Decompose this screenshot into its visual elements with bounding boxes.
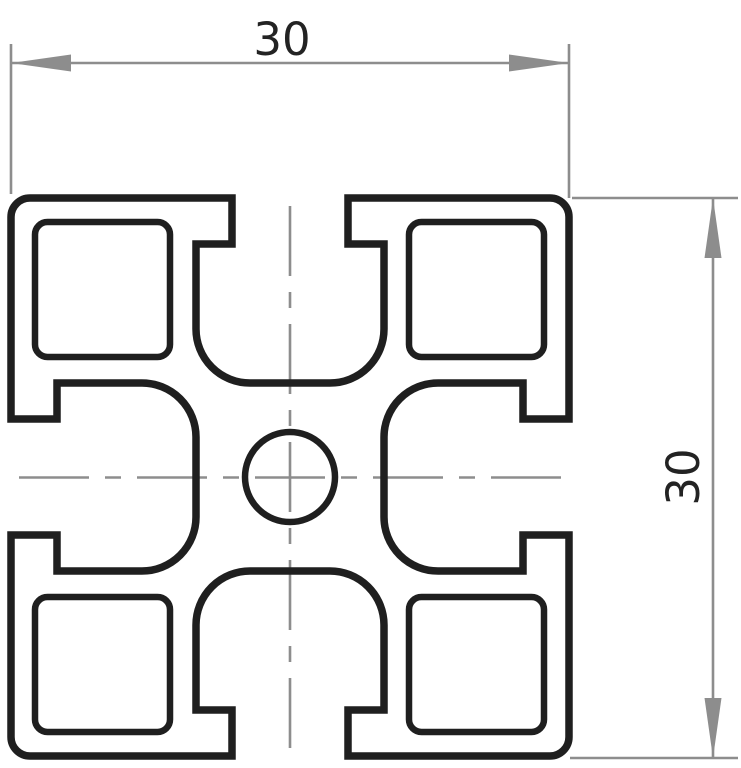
height-dimension-label: 30 xyxy=(657,448,710,505)
width-dimension-label: 30 xyxy=(253,13,310,66)
drawing-canvas: 30 30 xyxy=(0,0,741,768)
technical-drawing: 30 30 xyxy=(0,0,741,768)
